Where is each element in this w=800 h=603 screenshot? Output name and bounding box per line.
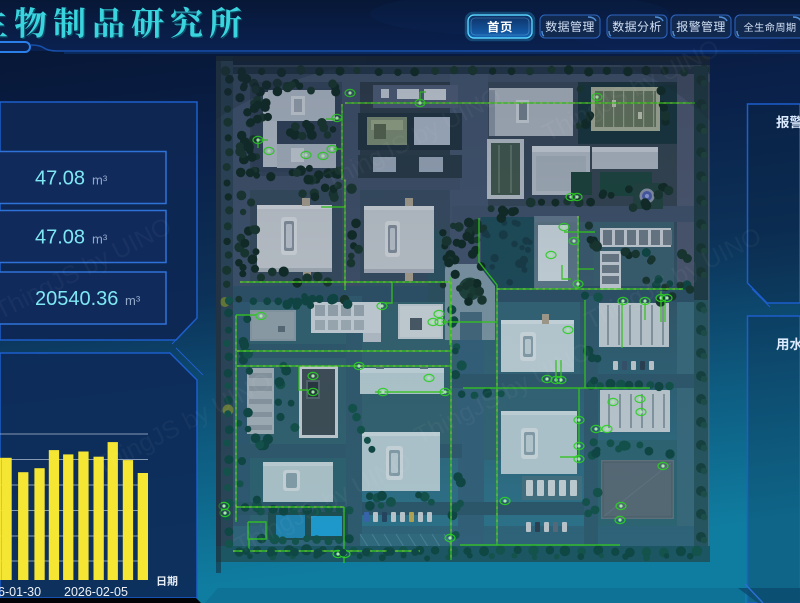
svg-text:47.08: 47.08 [35,168,85,190]
svg-text:m³: m³ [125,293,141,308]
svg-text:m³: m³ [92,173,108,188]
svg-text:2026-02-05: 2026-02-05 [64,585,128,599]
svg-text:47.08: 47.08 [35,227,85,249]
svg-text:6-01-30: 6-01-30 [0,585,41,599]
